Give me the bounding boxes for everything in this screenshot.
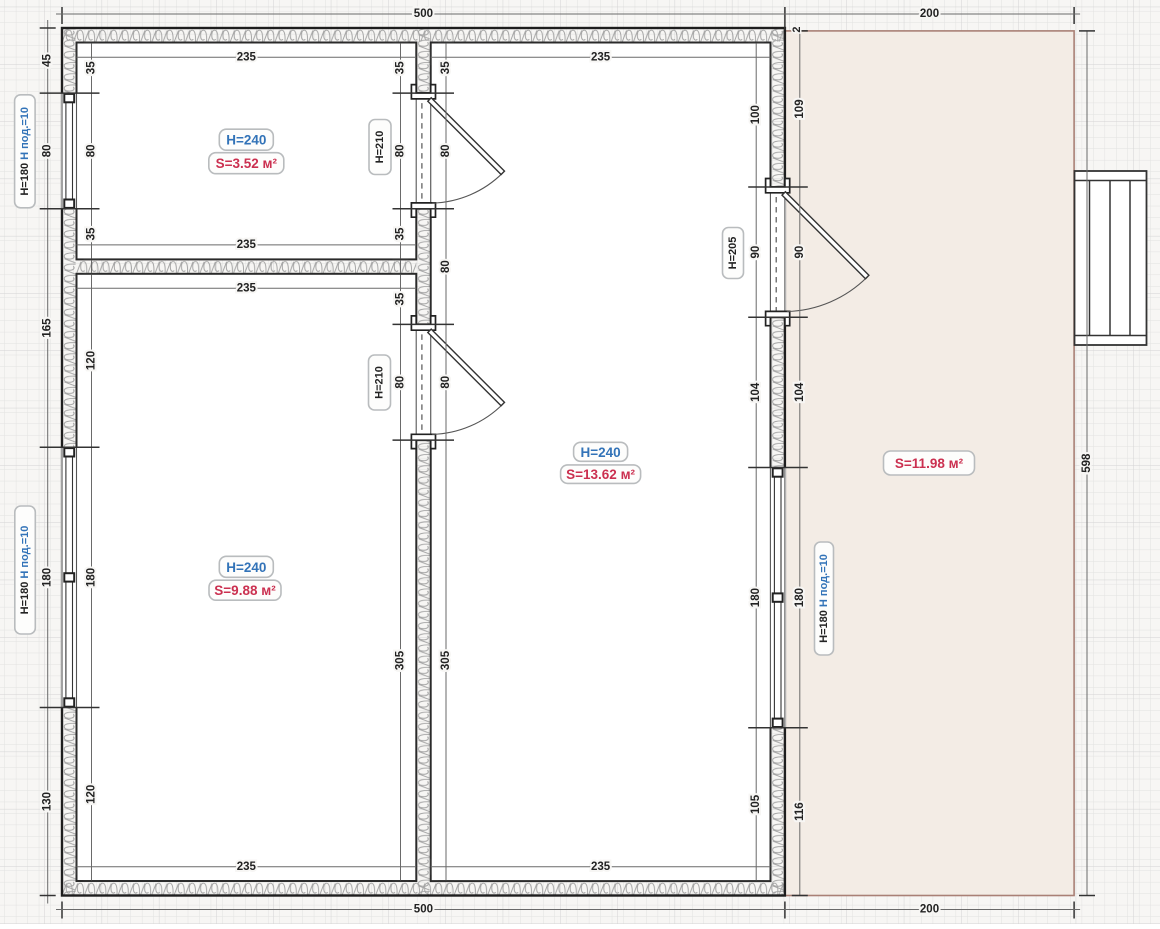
svg-text:S=3.52 м²: S=3.52 м² <box>216 156 278 171</box>
svg-text:100: 100 <box>750 105 762 124</box>
svg-text:500: 500 <box>414 904 433 916</box>
svg-text:80: 80 <box>440 260 452 273</box>
svg-text:80: 80 <box>440 376 452 389</box>
svg-text:235: 235 <box>237 239 257 251</box>
svg-text:45: 45 <box>42 54 54 67</box>
svg-text:200: 200 <box>920 904 939 916</box>
svg-text:S=11.98 м²: S=11.98 м² <box>895 456 964 471</box>
svg-text:35: 35 <box>86 61 98 74</box>
svg-text:80: 80 <box>86 145 98 158</box>
svg-text:500: 500 <box>414 8 433 20</box>
svg-text:80: 80 <box>42 145 54 158</box>
svg-text:200: 200 <box>920 8 939 20</box>
svg-text:35: 35 <box>86 227 98 240</box>
svg-text:105: 105 <box>750 794 762 814</box>
svg-text:90: 90 <box>794 246 806 259</box>
svg-text:2: 2 <box>791 26 803 32</box>
svg-text:H=210: H=210 <box>374 366 386 399</box>
svg-text:H=210: H=210 <box>374 131 386 164</box>
svg-text:90: 90 <box>750 246 762 259</box>
svg-text:80: 80 <box>395 145 407 158</box>
svg-text:130: 130 <box>42 792 54 811</box>
svg-text:H=180 H под.=10: H=180 H под.=10 <box>818 554 830 643</box>
svg-text:H=240: H=240 <box>226 133 266 148</box>
svg-text:H=180 H под.=10: H=180 H под.=10 <box>19 526 31 615</box>
svg-text:80: 80 <box>440 145 452 158</box>
svg-text:35: 35 <box>440 61 452 74</box>
svg-text:180: 180 <box>794 588 806 607</box>
svg-text:235: 235 <box>237 51 257 63</box>
svg-text:H=205: H=205 <box>727 237 739 270</box>
svg-text:35: 35 <box>395 227 407 240</box>
svg-text:235: 235 <box>237 282 257 294</box>
svg-text:180: 180 <box>42 568 54 587</box>
svg-text:598: 598 <box>1081 453 1093 473</box>
svg-text:109: 109 <box>794 99 806 118</box>
svg-text:35: 35 <box>395 292 407 305</box>
svg-text:S=13.62 м²: S=13.62 м² <box>566 467 635 482</box>
svg-text:H=240: H=240 <box>226 560 266 575</box>
svg-text:S=9.88 м²: S=9.88 м² <box>214 583 276 598</box>
svg-text:116: 116 <box>794 802 806 821</box>
svg-text:120: 120 <box>86 785 98 804</box>
svg-text:235: 235 <box>591 861 611 873</box>
svg-text:235: 235 <box>591 51 611 63</box>
svg-text:H=180 H под.=10: H=180 H под.=10 <box>19 107 31 196</box>
svg-text:235: 235 <box>237 861 257 873</box>
svg-text:35: 35 <box>395 61 407 74</box>
svg-text:305: 305 <box>440 650 452 670</box>
svg-text:180: 180 <box>750 588 762 607</box>
svg-text:H=240: H=240 <box>581 445 621 460</box>
svg-text:180: 180 <box>86 568 98 587</box>
svg-text:165: 165 <box>42 318 54 338</box>
svg-text:120: 120 <box>86 351 98 370</box>
svg-text:104: 104 <box>750 382 762 402</box>
svg-text:104: 104 <box>794 382 806 402</box>
svg-text:305: 305 <box>395 650 407 670</box>
svg-text:80: 80 <box>395 376 407 389</box>
